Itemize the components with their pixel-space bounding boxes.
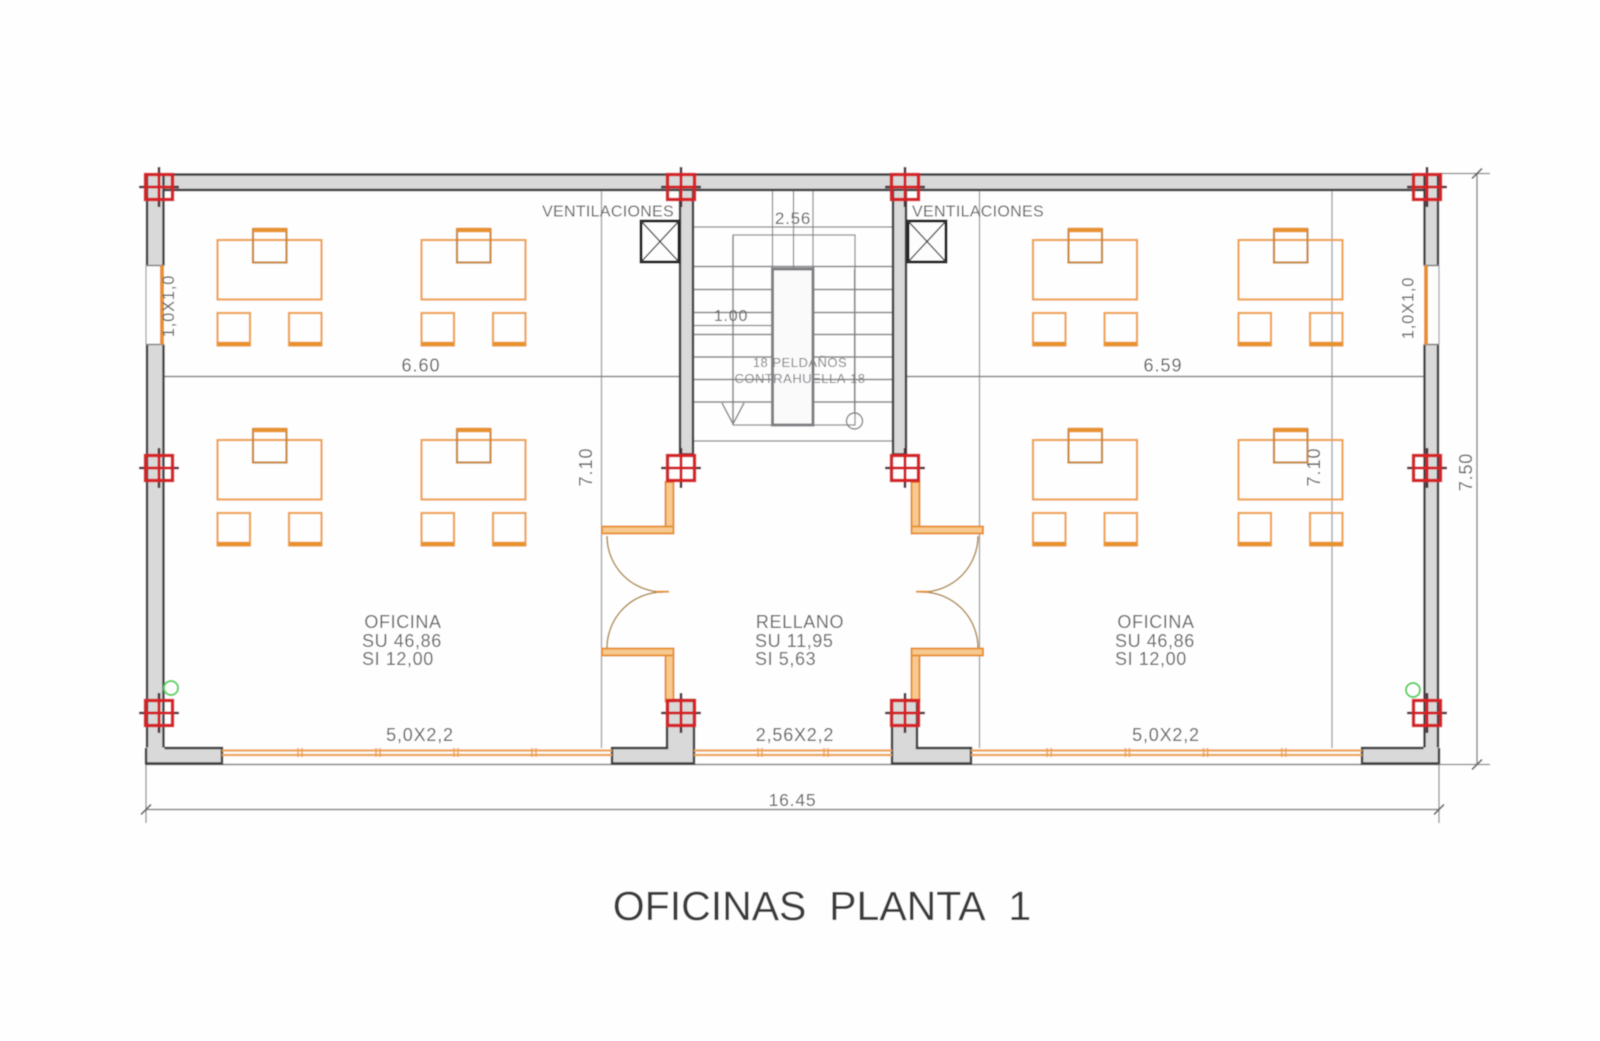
svg-text:6.59: 6.59 xyxy=(1143,356,1182,376)
svg-text:SI 12,00: SI 12,00 xyxy=(1115,649,1187,669)
svg-text:SU 11,95: SU 11,95 xyxy=(755,631,834,651)
svg-text:16.45: 16.45 xyxy=(769,790,817,810)
svg-text:7.50: 7.50 xyxy=(1456,453,1476,491)
svg-text:5,0X2,2: 5,0X2,2 xyxy=(1132,725,1200,745)
svg-text:RELLANO: RELLANO xyxy=(756,612,844,632)
svg-text:OFICINAS PLANTA 1: OFICINAS PLANTA 1 xyxy=(613,883,1031,929)
svg-text:5,0X2,2: 5,0X2,2 xyxy=(386,725,454,745)
svg-text:SI 5,63: SI 5,63 xyxy=(755,649,816,669)
svg-text:18 PELDAÑOS: 18 PELDAÑOS xyxy=(753,355,847,370)
svg-text:VENTILACIONES: VENTILACIONES xyxy=(912,204,1044,221)
svg-text:OFICINA: OFICINA xyxy=(364,612,441,632)
svg-text:CONTRAHUELLA 18: CONTRAHUELLA 18 xyxy=(734,371,865,386)
svg-text:SI 12,00: SI 12,00 xyxy=(362,649,434,669)
svg-text:VENTILACIONES: VENTILACIONES xyxy=(542,204,674,221)
svg-text:1,0X1,0: 1,0X1,0 xyxy=(160,275,178,337)
svg-text:2,56X2,2: 2,56X2,2 xyxy=(756,725,834,745)
svg-text:1.00: 1.00 xyxy=(714,308,748,325)
svg-text:1,0X1,0: 1,0X1,0 xyxy=(1400,277,1418,339)
svg-text:6.60: 6.60 xyxy=(401,356,440,376)
svg-text:SU 46,86: SU 46,86 xyxy=(362,631,442,651)
svg-text:7.10: 7.10 xyxy=(576,447,596,486)
svg-text:OFICINA: OFICINA xyxy=(1117,612,1194,632)
svg-text:SU 46,86: SU 46,86 xyxy=(1115,631,1195,651)
